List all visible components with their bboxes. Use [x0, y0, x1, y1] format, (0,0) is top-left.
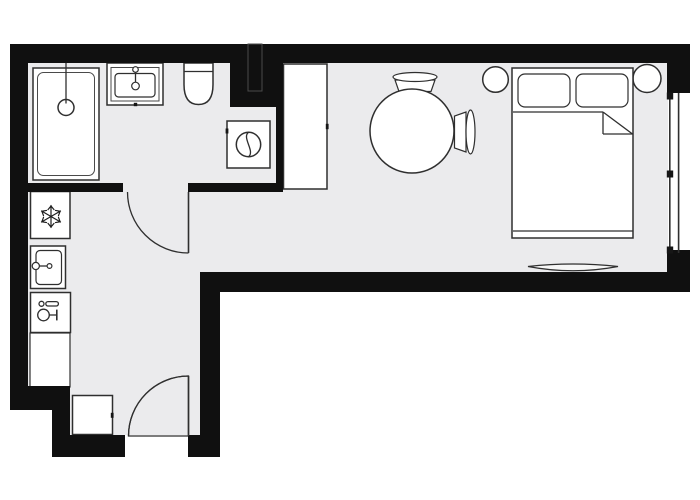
- basin-faucet-base: [132, 82, 140, 90]
- entry-side-wall: [200, 272, 220, 457]
- entry-wall-left: [52, 435, 125, 457]
- floor-plan: [0, 0, 700, 500]
- round-table: [370, 89, 454, 173]
- window-mullion-middle: [667, 171, 673, 178]
- basin-faucet-head: [133, 67, 139, 73]
- chair-right-seat: [455, 112, 467, 152]
- kitchen-faucet-head: [47, 264, 52, 269]
- partition-wall: [276, 107, 283, 192]
- cooktop: [31, 293, 71, 333]
- basin-handle-tick: [134, 103, 137, 106]
- refrigerator: [31, 192, 71, 239]
- chair-right-back: [466, 110, 475, 154]
- nightstand-right: [633, 65, 661, 93]
- nightstand-left: [483, 67, 509, 93]
- living-room-bottom-wall: [200, 272, 690, 292]
- shaft-wall-block: [230, 44, 283, 107]
- window-mullion-top: [667, 93, 673, 100]
- wardrobe-handle-tick: [326, 124, 329, 129]
- bathroom-wall-right: [188, 183, 283, 192]
- left-wall: [10, 44, 28, 386]
- bathroom-doorway-floor: [123, 183, 188, 192]
- window-mullion-bottom: [667, 247, 673, 254]
- pillow-right: [576, 74, 628, 107]
- right-wall-bottom: [667, 250, 690, 292]
- shoe-cabinet: [73, 396, 113, 435]
- shoe-cabinet-handle-tick: [111, 413, 114, 418]
- top-wall: [10, 44, 690, 63]
- toilet: [184, 63, 213, 105]
- washer-handle-tick: [226, 129, 229, 134]
- wardrobe: [284, 64, 328, 189]
- bathroom-wall-left: [28, 183, 123, 192]
- kitchen-counter: [30, 333, 70, 387]
- left-wall-step: [10, 386, 70, 410]
- right-wall-top: [667, 44, 690, 93]
- floor-plan-page: [0, 0, 700, 500]
- pillow-left: [518, 74, 570, 107]
- kitchen-faucet-base: [32, 262, 39, 269]
- chair-top-back: [393, 73, 437, 82]
